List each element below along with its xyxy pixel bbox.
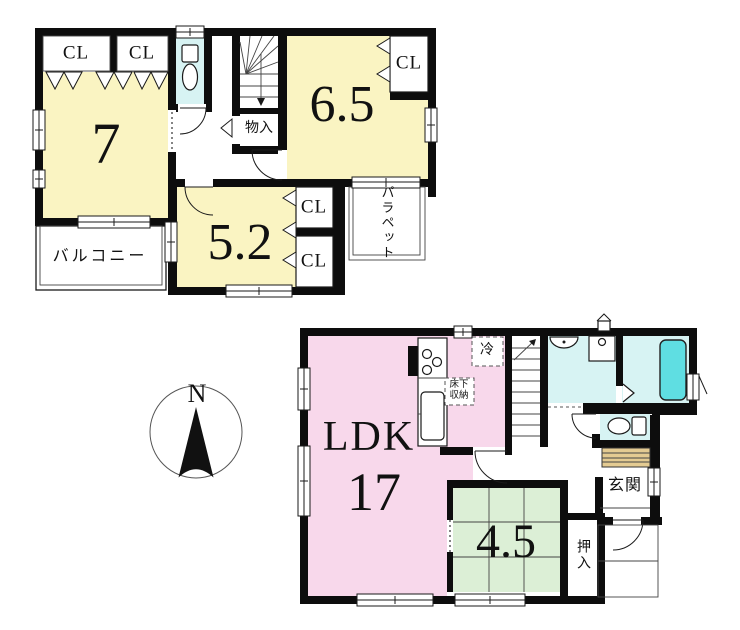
floor-storage-label: 床下収納: [447, 380, 471, 402]
stairs-1f: [512, 339, 540, 436]
storage-door-wedge: [221, 119, 232, 137]
tatami-size-label: 4.5: [476, 518, 536, 566]
compass-needle: [179, 407, 214, 478]
kitchen-sink-icon: [421, 392, 444, 440]
storage-label: 物入: [245, 122, 273, 136]
ldk-name-label: LDK: [323, 416, 415, 458]
porch-outline: [598, 525, 658, 597]
closet-label-2: CL: [129, 44, 155, 63]
balcony-label: バルコニー: [53, 249, 148, 265]
room-7-size-label: 7: [92, 115, 121, 173]
kitchen-counter: [418, 338, 447, 446]
stairs-2f: [240, 36, 278, 106]
entrance-label: 玄関: [608, 478, 642, 494]
closet-label-5: CL: [301, 252, 327, 271]
room-52-size-label: 5.2: [208, 217, 273, 269]
closet-label-3: CL: [396, 54, 422, 73]
room-65-size-label: 6.5: [310, 79, 375, 131]
toilet-2f-icon: [182, 45, 198, 90]
parapet-label: パラペット: [381, 186, 394, 261]
closet-label-4: CL: [301, 198, 327, 217]
oshiire-label: 押入: [575, 539, 589, 571]
ldk-size-label: 17: [347, 465, 401, 519]
floor-plan-canvas: CL CL CL CL CL 7 6.5 5.2 物入 バルコニー パラペット …: [0, 0, 740, 630]
refrigerator-label: 冷: [480, 344, 494, 358]
vent-icon: [597, 314, 611, 331]
shoe-cabinet: [602, 448, 650, 467]
washing-machine-icon: [589, 336, 615, 361]
closet-label-1: CL: [63, 44, 89, 63]
compass-north-label: N: [188, 381, 207, 407]
stairs-down-arrow: [257, 98, 265, 106]
bathtub-icon: [660, 340, 686, 400]
